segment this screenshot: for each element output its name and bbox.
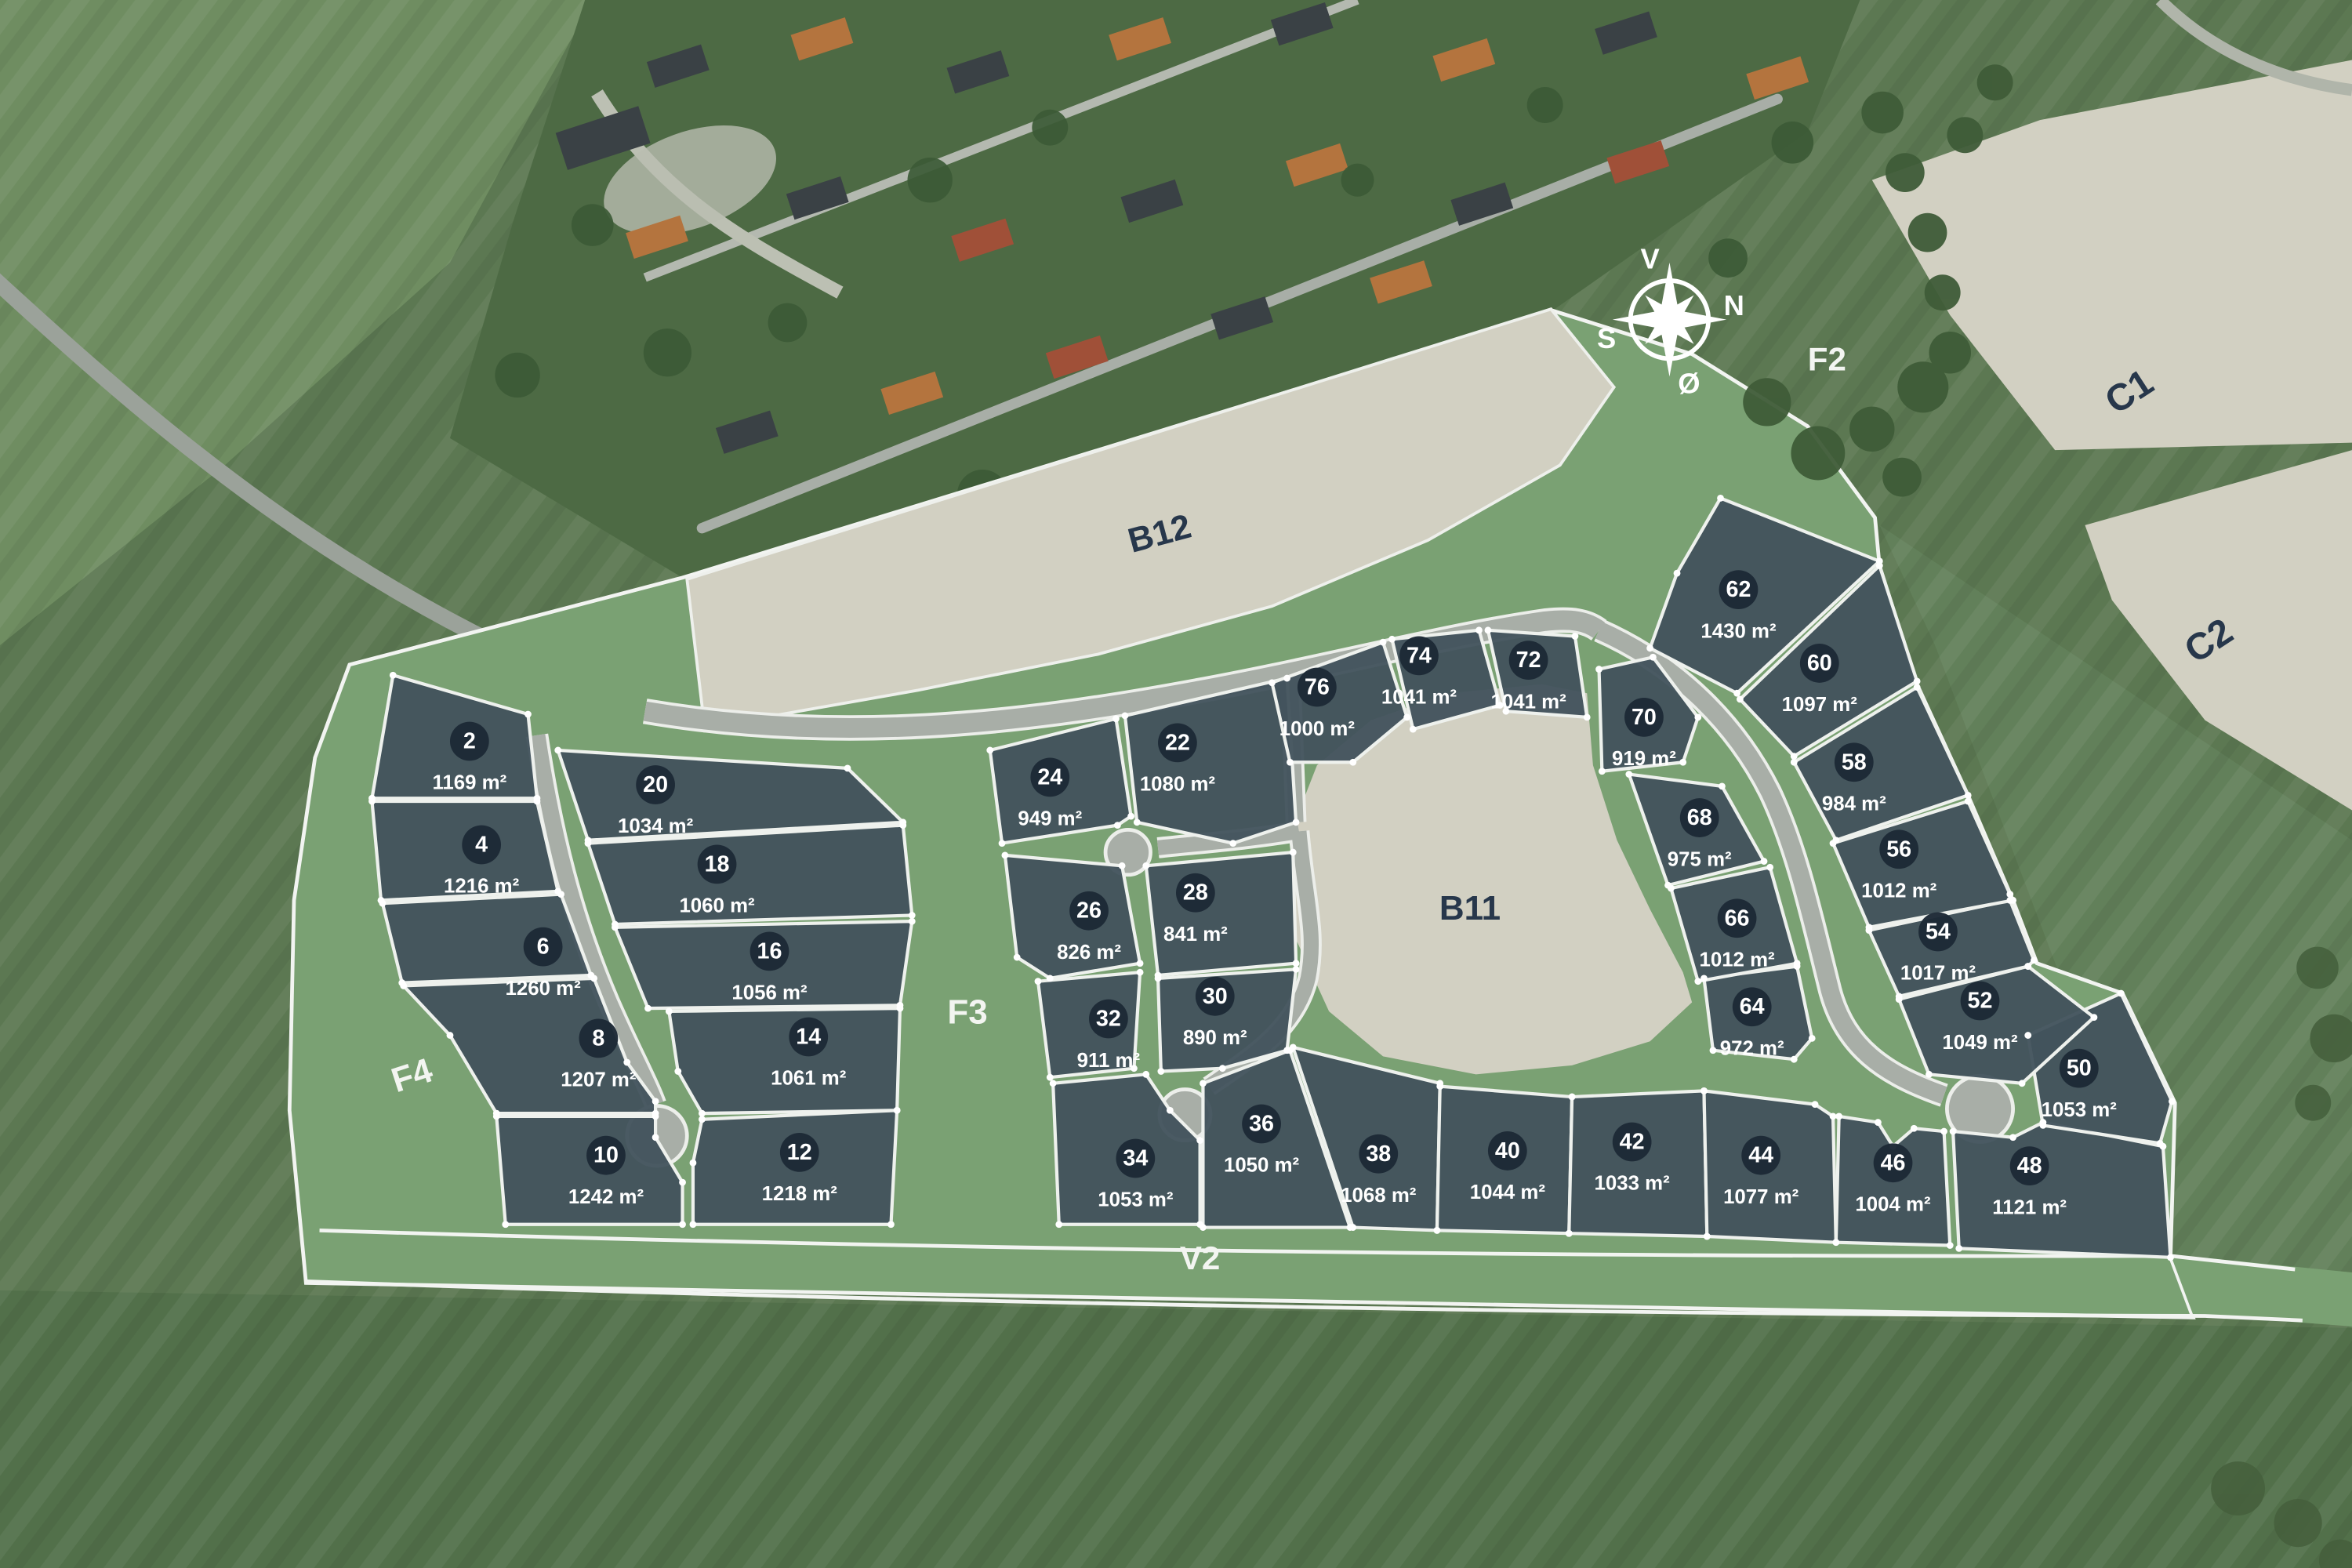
plot-number-14: 14 (796, 1024, 821, 1049)
plot-number-36: 36 (1249, 1111, 1274, 1136)
plot-area-52: 1049 m² (1942, 1032, 2018, 1054)
plot-vertex-dot (2009, 897, 2016, 904)
plot-number-52: 52 (1968, 989, 1993, 1014)
plot-vertex-dot (1926, 1071, 1933, 1078)
zone-label-V2: V2 (1180, 1240, 1220, 1276)
plot-vertex-dot (1569, 1094, 1576, 1101)
plot-vertex-dot (534, 798, 541, 805)
plot-vertex-dot (1812, 1101, 1819, 1108)
plot-number-56: 56 (1886, 837, 1911, 862)
plot-number-34: 34 (1123, 1146, 1148, 1171)
plot-vertex-dot (554, 747, 561, 754)
plot-number-72: 72 (1516, 648, 1541, 673)
plot-vertex-dot (1955, 1245, 1962, 1252)
zone-label-F2: F2 (1808, 341, 1846, 378)
plot-area-72: 1041 m² (1491, 691, 1567, 713)
plot-vertex-dot (1950, 1128, 1957, 1135)
plot-vertex-dot (447, 1032, 454, 1039)
plot-number-6: 6 (537, 935, 550, 960)
plot-number-70: 70 (1632, 705, 1657, 730)
plot-vertex-dot (1566, 1230, 1573, 1237)
plot-number-12: 12 (787, 1140, 812, 1165)
plot-vertex-dot (1965, 792, 1972, 799)
plot-48[interactable] (1953, 1123, 2170, 1258)
plot-vertex-dot (899, 818, 906, 826)
plot-vertex-dot (1832, 837, 1839, 844)
plot-vertex-dot (1965, 798, 1972, 805)
plot-vertex-dot (1791, 1056, 1798, 1063)
plot-vertex-dot (1719, 782, 1726, 789)
plot-vertex-dot (1832, 1239, 1839, 1246)
plot-number-50: 50 (2067, 1056, 2092, 1081)
plot-vertex-dot (2009, 1134, 2016, 1141)
plot-number-64: 64 (1740, 994, 1765, 1019)
plot-vertex-dot (1876, 557, 1883, 564)
plot-vertex-dot (1134, 818, 1141, 826)
plot-vertex-dot (679, 1221, 686, 1228)
plot-number-26: 26 (1076, 898, 1102, 924)
plot-vertex-dot (1717, 495, 1724, 502)
plot-vertex-dot (1290, 849, 1297, 856)
plot-vertex-dot (1293, 818, 1300, 826)
plot-vertex-dot (1694, 978, 1701, 985)
plot-area-18: 1060 m² (679, 895, 755, 917)
plot-vertex-dot (2024, 963, 2031, 970)
plot-number-30: 30 (1203, 984, 1228, 1009)
plot-vertex-dot (2091, 1014, 2098, 1021)
plot-vertex-dot (2006, 891, 2013, 898)
plot-vertex-dot (2157, 1140, 2164, 1147)
plot-vertex-dot (1485, 626, 1492, 633)
plot-vertex-dot (1875, 1119, 1882, 1126)
plot-vertex-dot (2118, 990, 2125, 997)
plot-vertex-dot (1055, 1221, 1062, 1228)
plot-vertex-dot (1700, 1087, 1708, 1094)
plot-number-2: 2 (463, 728, 476, 753)
plot-area-70: 919 m² (1612, 748, 1676, 770)
plot-vertex-dot (1911, 1125, 1918, 1132)
plot-vertex-dot (2169, 1098, 2176, 1105)
plot-number-16: 16 (757, 938, 782, 964)
plot-number-58: 58 (1842, 750, 1867, 775)
plot-vertex-dot (1733, 690, 1740, 697)
plot-vertex-dot (1947, 1242, 1954, 1249)
plot-vertex-dot (2167, 1254, 2174, 1261)
plot-vertex-dot (844, 765, 851, 772)
plot-vertex-dot (1047, 975, 1054, 982)
plot-vertex-dot (1388, 636, 1396, 643)
plot-vertex-dot (652, 1134, 659, 1141)
plot-vertex-dot (1599, 768, 1606, 775)
plot-vertex-dot (1349, 1224, 1356, 1231)
plot-vertex-dot (1112, 715, 1120, 722)
plot-vertex-dot (1380, 639, 1387, 646)
plot-area-74: 1041 m² (1381, 687, 1457, 709)
plot-vertex-dot (1584, 713, 1591, 720)
plot-area-30: 890 m² (1183, 1027, 1247, 1049)
plot-area-48: 1121 m² (1992, 1196, 2067, 1218)
compass-letter-east: Ø (1678, 367, 1700, 399)
plot-vertex-dot (1122, 713, 1129, 720)
plot-area-40: 1044 m² (1470, 1181, 1546, 1203)
plot-vertex-dot (999, 840, 1006, 847)
plot-vertex-dot (1737, 695, 1744, 702)
plot-map: 21169 m²41216 m²61260 m²81207 m²101242 m… (0, 0, 2352, 1568)
plot-vertex-dot (400, 982, 407, 989)
plot-area-56: 1012 m² (1861, 880, 1937, 902)
plot-vertex-dot (524, 711, 532, 718)
plot-vertex-dot (644, 1005, 652, 1012)
plot-area-68: 975 m² (1668, 848, 1732, 870)
plot-area-76: 1000 m² (1279, 718, 1356, 740)
plot-vertex-dot (623, 1059, 630, 1066)
plot-vertex-dot (1674, 570, 1681, 577)
plot-vertex-dot (986, 747, 993, 754)
plot-vertex-dot (1157, 1068, 1164, 1075)
plot-number-18: 18 (705, 851, 730, 877)
plot-14[interactable] (669, 1008, 900, 1113)
plot-vertex-dot (909, 912, 916, 919)
plot-vertex-dot (368, 798, 376, 805)
plot-number-8: 8 (592, 1025, 604, 1051)
plot-number-48: 48 (2017, 1153, 2042, 1178)
plot-vertex-dot (1809, 1035, 1816, 1042)
plot-vertex-dot (1475, 626, 1483, 633)
plot-number-68: 68 (1687, 805, 1712, 830)
plot-area-42: 1033 m² (1595, 1173, 1671, 1195)
plot-vertex-dot (1229, 840, 1236, 847)
plot-vertex-dot (1200, 1224, 1207, 1231)
plot-vertex-dot (2019, 1080, 2026, 1087)
plot-vertex-dot (1830, 1113, 1837, 1120)
plot-vertex-dot (1791, 759, 1798, 766)
plot-area-50: 1053 m² (2042, 1099, 2118, 1121)
plot-vertex-dot (1269, 679, 1276, 686)
plot-area-2: 1169 m² (432, 772, 506, 794)
plot-area-44: 1077 m² (1723, 1186, 1799, 1208)
plot-42[interactable] (1569, 1091, 1707, 1236)
plot-10[interactable] (496, 1116, 682, 1225)
plot-number-32: 32 (1096, 1007, 1121, 1032)
plot-vertex-dot (2031, 956, 2038, 964)
plot-vertex-dot (1940, 1128, 1947, 1135)
plot-vertex-dot (699, 1116, 706, 1123)
plot-vertex-dot (690, 1221, 697, 1228)
plot-area-38: 1068 m² (1341, 1185, 1417, 1207)
plot-number-20: 20 (643, 772, 668, 797)
zone-label-F3: F3 (947, 993, 987, 1031)
plot-vertex-dot (666, 1008, 673, 1015)
plot-vertex-dot (1293, 960, 1300, 967)
plot-area-28: 841 m² (1163, 924, 1228, 946)
plot-vertex-dot (1014, 954, 1021, 961)
plot-vertex-dot (1035, 978, 1042, 985)
plot-number-54: 54 (1926, 920, 1951, 945)
plot-vertex-dot (1127, 813, 1134, 820)
plot-area-24: 949 m² (1018, 808, 1082, 830)
plot-vertex-dot (1290, 1044, 1297, 1051)
plot-vertex-dot (1434, 1227, 1441, 1234)
plot-vertex-dot (1694, 713, 1701, 720)
plot-area-66: 1012 m² (1699, 949, 1775, 971)
plot-vertex-dot (1710, 1047, 1717, 1054)
plot-vertex-dot (1403, 713, 1410, 720)
plot-vertex-dot (493, 1113, 500, 1120)
plot-vertex-dot (679, 1179, 686, 1186)
plot-area-46: 1004 m² (1855, 1193, 1931, 1215)
plot-vertex-dot (1167, 1107, 1174, 1114)
plot-vertex-dot (1794, 960, 1801, 967)
plot-vertex-dot (1650, 654, 1657, 661)
plot-vertex-dot (502, 1221, 509, 1228)
plot-vertex-dot (1200, 1080, 1207, 1087)
plot-area-62: 1430 m² (1700, 620, 1777, 642)
plot-vertex-dot (1595, 666, 1602, 673)
plot-area-64: 972 m² (1720, 1037, 1784, 1059)
compass-letter-south: S (1597, 322, 1616, 354)
plot-area-10: 1242 m² (568, 1186, 644, 1208)
plot-vertex-dot (1896, 993, 1903, 1000)
plot-vertex-dot (1137, 969, 1144, 976)
plot-vertex-dot (1287, 759, 1294, 766)
plot-number-42: 42 (1620, 1129, 1645, 1154)
plot-vertex-dot (2024, 1032, 2031, 1039)
plot-vertex-dot (1700, 975, 1708, 982)
plot-number-24: 24 (1037, 764, 1062, 789)
plot-vertex-dot (1436, 1083, 1443, 1090)
plot-vertex-dot (1410, 726, 1417, 733)
plot-vertex-dot (1866, 924, 1873, 931)
plot-area-60: 1097 m² (1782, 694, 1858, 716)
plot-vertex-dot (585, 837, 592, 844)
plot-number-28: 28 (1183, 880, 1208, 906)
compass-letter-west: V (1640, 243, 1659, 275)
plot-vertex-dot (2039, 1122, 2046, 1129)
compass-letter-north: N (1724, 289, 1744, 321)
plot-vertex-dot (1704, 1233, 1711, 1240)
aerial-plot-map-svg: 21169 m²41216 m²61260 m²81207 m²101242 m… (0, 0, 2352, 1568)
plot-vertex-dot (1114, 822, 1121, 829)
plot-vertex-dot (1155, 975, 1162, 982)
plot-area-58: 984 m² (1822, 793, 1886, 815)
plot-vertex-dot (1835, 1113, 1842, 1120)
plot-vertex-dot (1349, 759, 1356, 766)
plot-number-66: 66 (1725, 906, 1750, 931)
plot-area-34: 1053 m² (1098, 1189, 1174, 1211)
plot-number-22: 22 (1165, 730, 1190, 755)
plot-vertex-dot (1119, 862, 1126, 869)
plot-number-40: 40 (1495, 1138, 1520, 1163)
plot-vertex-dot (1047, 1074, 1054, 1081)
plot-vertex-dot (557, 891, 564, 898)
plot-vertex-dot (1219, 1065, 1226, 1072)
plot-number-60: 60 (1807, 651, 1832, 676)
plot-vertex-dot (1142, 1071, 1149, 1078)
plot-vertex-dot (699, 1110, 706, 1117)
plot-vertex-dot (1914, 684, 1921, 691)
plot-vertex-dot (894, 1107, 901, 1114)
plot-number-44: 44 (1748, 1143, 1773, 1168)
plot-vertex-dot (1679, 759, 1686, 766)
plot-vertex-dot (1914, 677, 1921, 684)
plot-area-36: 1050 m² (1224, 1155, 1300, 1177)
plot-area-16: 1056 m² (731, 982, 808, 1004)
plot-vertex-dot (652, 1113, 659, 1120)
plot-vertex-dot (1791, 753, 1798, 760)
plot-area-14: 1061 m² (771, 1068, 847, 1090)
plot-vertex-dot (897, 1002, 904, 1009)
plot-number-38: 38 (1366, 1142, 1391, 1167)
plot-vertex-dot (1625, 771, 1632, 778)
plot-vertex-dot (652, 1098, 659, 1105)
plot-area-22: 1080 m² (1140, 774, 1216, 796)
plot-number-62: 62 (1726, 577, 1751, 602)
plot-vertex-dot (590, 975, 597, 982)
plot-vertex-dot (1001, 852, 1008, 859)
plot-vertex-dot (1137, 960, 1144, 967)
plot-area-54: 1017 m² (1900, 963, 1976, 985)
plot-area-4: 1216 m² (444, 876, 520, 898)
plot-vertex-dot (909, 918, 916, 925)
plot-vertex-dot (390, 672, 397, 679)
plot-vertex-dot (1664, 882, 1671, 889)
plot-number-76: 76 (1305, 675, 1330, 700)
plot-vertex-dot (1142, 862, 1149, 869)
plot-area-20: 1034 m² (618, 815, 694, 837)
plot-vertex-dot (1293, 966, 1300, 973)
plot-area-6: 1260 m² (506, 978, 582, 1000)
plot-area-32: 911 m² (1077, 1050, 1141, 1072)
plot-vertex-dot (1761, 858, 1768, 865)
plot-vertex-dot (1572, 633, 1579, 640)
plot-number-74: 74 (1406, 643, 1432, 668)
plot-area-8: 1207 m² (561, 1069, 637, 1091)
plot-vertex-dot (1646, 644, 1653, 652)
plot-number-46: 46 (1881, 1150, 1906, 1175)
plot-vertex-dot (1050, 1080, 1057, 1087)
plot-vertex-dot (612, 921, 619, 928)
plot-area-26: 826 m² (1057, 942, 1121, 964)
zone-label-B11: B11 (1439, 889, 1501, 927)
plot-number-4: 4 (475, 833, 488, 858)
plot-number-10: 10 (593, 1143, 619, 1168)
plot-vertex-dot (1283, 675, 1290, 682)
plot-vertex-dot (674, 1068, 681, 1075)
plot-vertex-dot (887, 1221, 895, 1228)
plot-vertex-dot (379, 900, 386, 907)
plot-vertex-dot (690, 1160, 697, 1167)
plot-area-12: 1218 m² (762, 1183, 838, 1205)
plot-28[interactable] (1146, 852, 1296, 975)
plot-vertex-dot (1196, 1137, 1203, 1144)
plot-vertex-dot (1766, 864, 1773, 871)
